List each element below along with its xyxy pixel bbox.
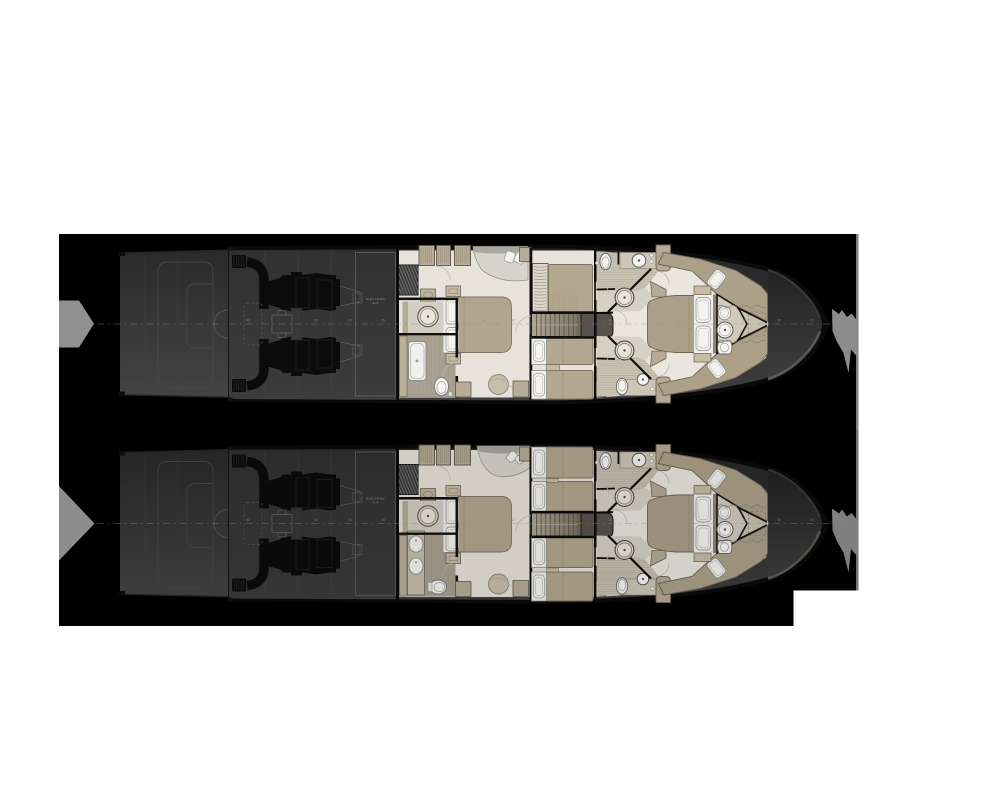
svg-text:18: 18: [608, 518, 612, 522]
svg-text:17: 17: [676, 319, 680, 323]
svg-text:11: 11: [482, 518, 486, 522]
svg-text:16: 16: [544, 518, 548, 522]
svg-text:20: 20: [810, 319, 814, 323]
svg-text:50: 50: [314, 518, 318, 522]
svg-text:AUX: AUX: [372, 301, 378, 305]
svg-text:28: 28: [777, 518, 781, 522]
svg-text:28: 28: [777, 319, 781, 323]
svg-text:45: 45: [348, 319, 352, 323]
svg-text:16: 16: [544, 319, 548, 323]
svg-text:45: 45: [348, 518, 352, 522]
svg-text:42: 42: [246, 319, 250, 323]
svg-text:12: 12: [511, 319, 515, 323]
svg-text:05: 05: [381, 319, 385, 323]
svg-text:12: 12: [511, 518, 515, 522]
svg-text:42: 42: [246, 518, 250, 522]
svg-text:11: 11: [482, 319, 486, 323]
svg-text:18: 18: [608, 319, 612, 323]
svg-text:20: 20: [810, 518, 814, 522]
svg-text:05: 05: [381, 518, 385, 522]
svg-text:50: 50: [314, 319, 318, 323]
svg-text:17: 17: [676, 518, 680, 522]
svg-text:14: 14: [742, 319, 746, 323]
svg-text:14: 14: [742, 518, 746, 522]
